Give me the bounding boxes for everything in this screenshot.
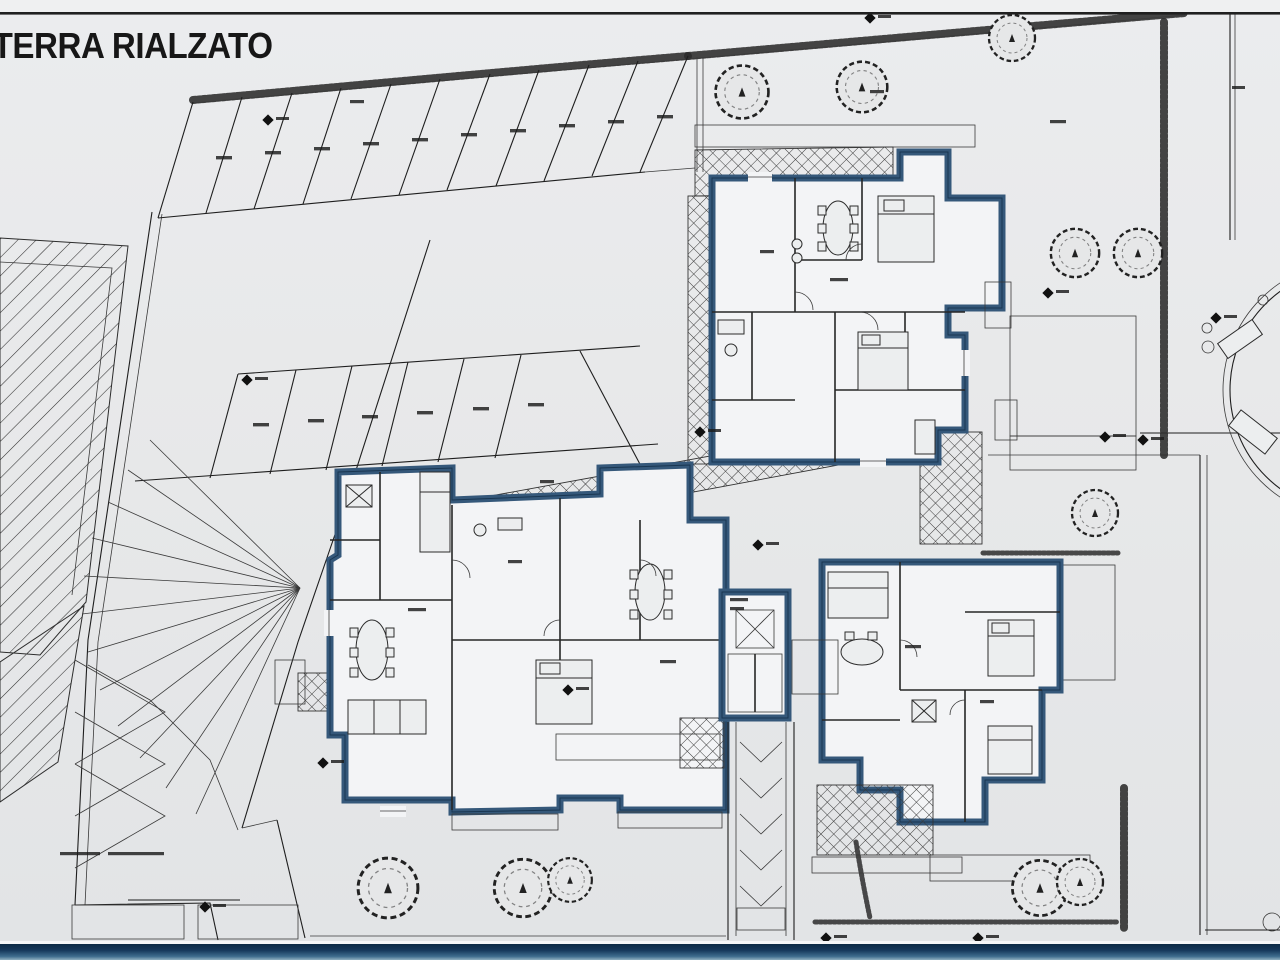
- sheet-top-border: [0, 0, 1280, 15]
- tree-icon: [716, 66, 769, 119]
- terrace-small: [298, 673, 330, 711]
- tree-icon: [1072, 490, 1118, 536]
- footer-bar: [0, 941, 1280, 960]
- terrace-core-left: [680, 718, 724, 768]
- tree-icon: [1057, 859, 1103, 905]
- terrace-wing-bottom: [817, 785, 933, 855]
- building-lower: [298, 465, 726, 830]
- floor-title: TERRA RIALZATO: [0, 27, 273, 67]
- tree-icon: [989, 15, 1035, 61]
- tree-icon: [548, 858, 592, 902]
- floor-plan-sheet: TERRA RIALZATO: [0, 0, 1280, 960]
- tree-icon: [1114, 229, 1162, 277]
- site-plan-drawing: TERRA RIALZATO: [0, 0, 1280, 960]
- tree-icon: [1051, 229, 1099, 277]
- tree-icon: [494, 859, 552, 917]
- tree-icon: [358, 858, 418, 918]
- tree-icon: [837, 62, 888, 113]
